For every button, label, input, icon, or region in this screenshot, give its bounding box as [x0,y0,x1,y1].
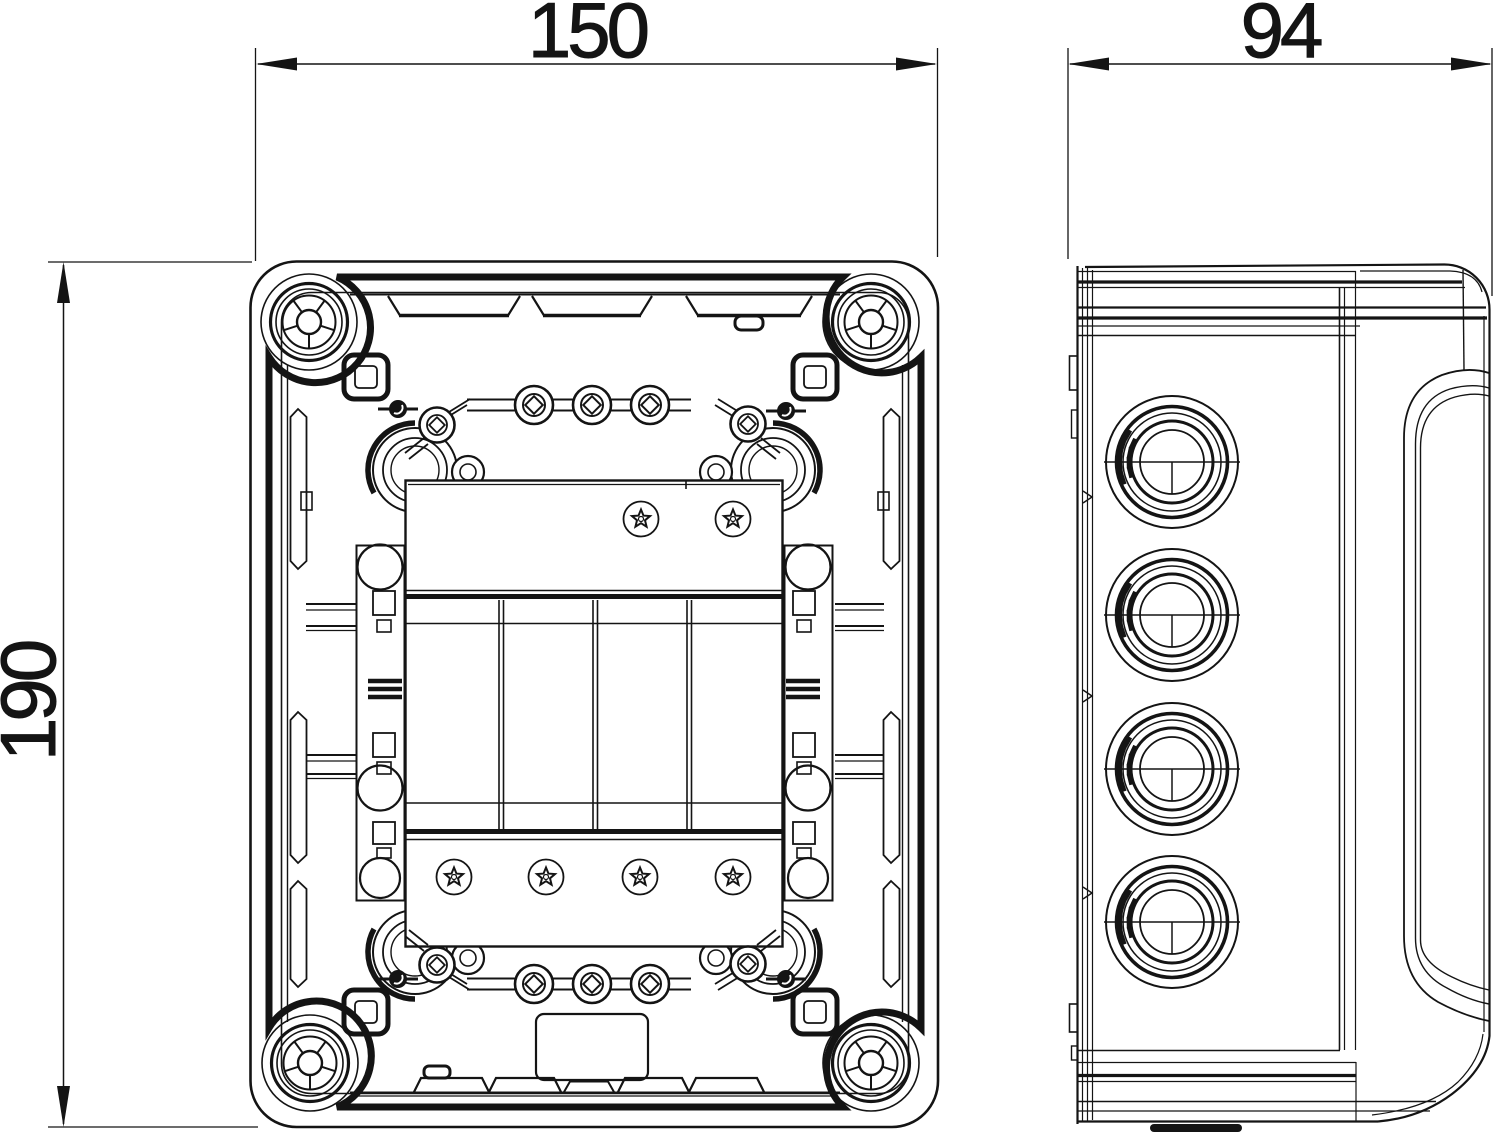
svg-text:190: 190 [0,641,72,761]
svg-text:150: 150 [528,0,648,74]
svg-text:94: 94 [1241,0,1322,74]
